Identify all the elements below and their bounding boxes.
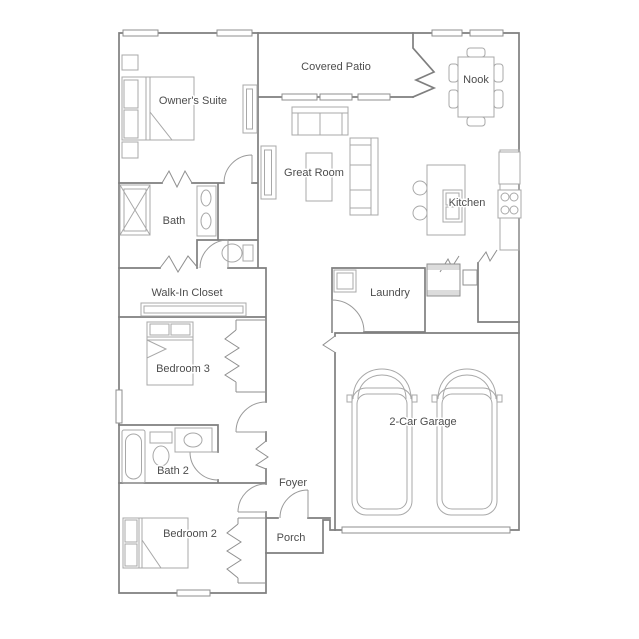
owners-bath-fixtures [120, 185, 253, 262]
room-label-bath2: Bath 2 [157, 465, 189, 477]
room-label-owners-suite: Owner's Suite [159, 95, 227, 107]
car-icon [432, 369, 502, 515]
dining-chair-icon [449, 64, 458, 82]
sliding-door-icon [282, 94, 317, 100]
washer-dryer-icon [334, 270, 356, 292]
dining-chair-icon [467, 117, 485, 126]
sectional-sofa-icon [350, 138, 378, 215]
sliding-door-icon [320, 94, 352, 100]
window-icon [217, 30, 252, 36]
double-vanity-icon [197, 186, 216, 236]
wall-opening-icon [162, 171, 192, 187]
door-swing-icon [238, 484, 266, 512]
dining-table-icon [458, 57, 494, 117]
bar-stool-icon [413, 206, 427, 220]
nightstand-icon [122, 55, 138, 70]
toilet-icon [222, 244, 253, 262]
dining-chair-icon [449, 90, 458, 108]
garage-entry-threshold [427, 264, 477, 296]
window-icon [470, 30, 503, 36]
sliding-door-icon [358, 94, 390, 100]
door-swing-icon [190, 452, 218, 480]
bed-icon [147, 322, 193, 385]
refrigerator-icon [499, 152, 520, 184]
room-label-covered-patio: Covered Patio [301, 61, 371, 73]
floor-plan-canvas: Owner's Suite Covered Patio Nook Great R… [0, 0, 639, 639]
patio-notch-wall [413, 33, 434, 97]
bedroom2-closet [238, 518, 266, 583]
dining-chair-icon [494, 64, 503, 82]
window-icon [177, 590, 210, 596]
nook-furniture [449, 48, 503, 126]
nightstand-icon [122, 142, 138, 158]
shower-icon [120, 185, 150, 235]
sofa-icon [292, 107, 348, 135]
range-stove-icon [498, 190, 521, 218]
room-label-garage: 2-Car Garage [389, 416, 456, 428]
window-icon [432, 30, 462, 36]
great-room-furniture [261, 107, 378, 215]
entry-step [463, 270, 477, 285]
car-icon [347, 369, 417, 515]
dining-chair-icon [494, 90, 503, 108]
door-swing-icon [236, 402, 266, 432]
wall-opening-icon [225, 330, 239, 382]
room-label-bedroom2: Bedroom 2 [163, 528, 217, 540]
dining-chair-icon [467, 48, 485, 57]
floor-plan: Owner's Suite Covered Patio Nook Great R… [0, 0, 639, 639]
room-label-laundry: Laundry [370, 287, 410, 299]
window-icon [123, 30, 158, 36]
wall-opening-icon [323, 336, 336, 353]
room-label-foyer: Foyer [279, 477, 307, 489]
bedroom3-closet [236, 320, 266, 392]
wall-openings [160, 171, 497, 578]
wall-opening-icon [227, 524, 241, 578]
bathtub-icon [122, 430, 145, 483]
door-swing-icon [332, 300, 364, 332]
door-swing-icon [280, 490, 308, 518]
room-label-kitchen: Kitchen [449, 197, 486, 209]
toilet-icon [150, 432, 172, 466]
bed-icon [123, 518, 188, 568]
wall-opening-icon [478, 250, 497, 263]
wardrobe-shelf-icon [141, 303, 246, 316]
bar-stool-icon [413, 181, 427, 195]
garage-door-icon [342, 527, 510, 533]
door-swing-icon [200, 240, 228, 268]
wall-opening-icon [160, 256, 198, 272]
bed-icon [122, 77, 194, 140]
room-label-walk-in-closet: Walk-In Closet [151, 287, 222, 299]
dresser-icon [243, 85, 257, 133]
room-label-porch: Porch [277, 532, 306, 544]
door-swing-icon [224, 155, 252, 183]
room-label-nook: Nook [463, 74, 489, 86]
tv-console-icon [261, 146, 276, 199]
wall-opening-icon [256, 441, 268, 469]
room-label-great-room: Great Room [284, 167, 344, 179]
room-label-bath: Bath [163, 215, 186, 227]
vanity-sink-icon [175, 428, 212, 452]
window-icon [116, 390, 122, 423]
room-label-bedroom3: Bedroom 3 [156, 363, 210, 375]
